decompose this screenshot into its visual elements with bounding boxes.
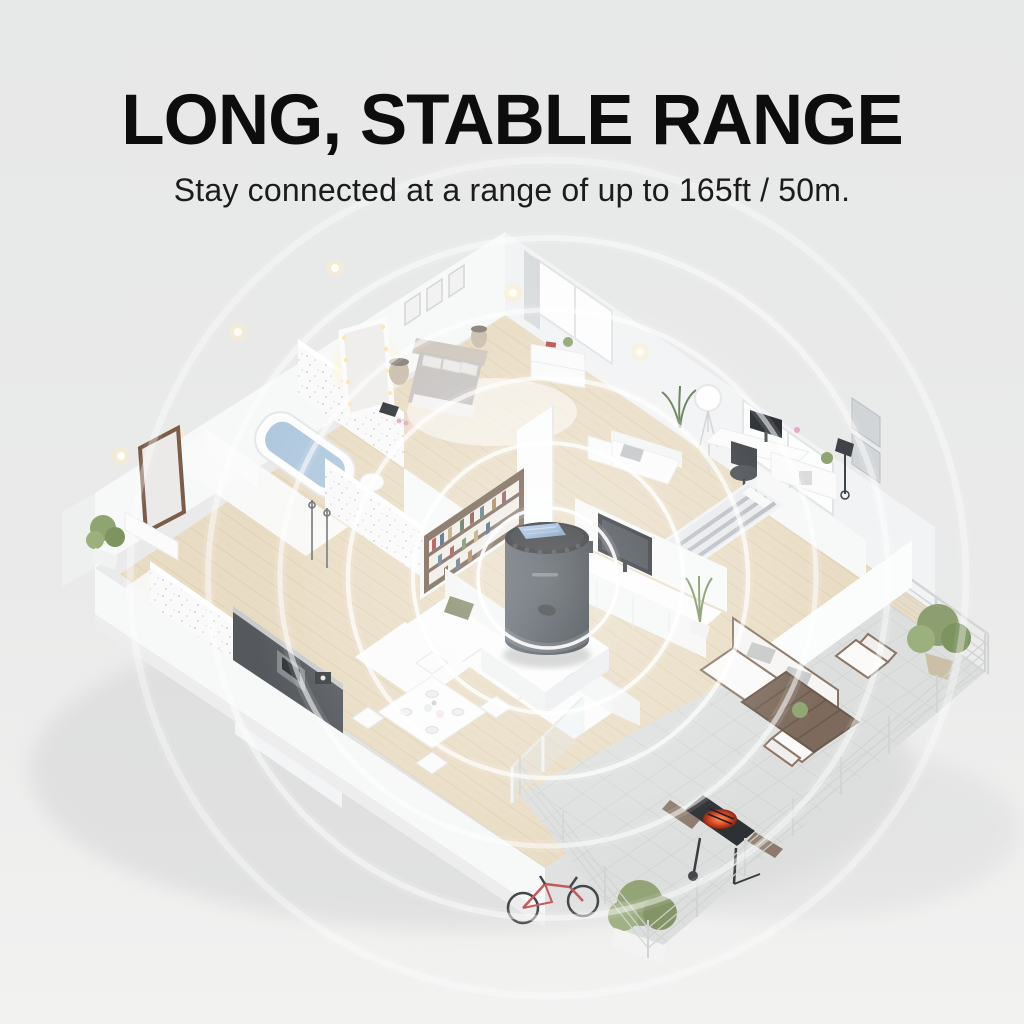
header: LONG, STABLE RANGE Stay connected at a r… [0,84,1024,209]
signal-haze [248,278,848,878]
page-title: LONG, STABLE RANGE [0,84,1024,158]
page-subtitle: Stay connected at a range of up to 165ft… [0,172,1024,209]
